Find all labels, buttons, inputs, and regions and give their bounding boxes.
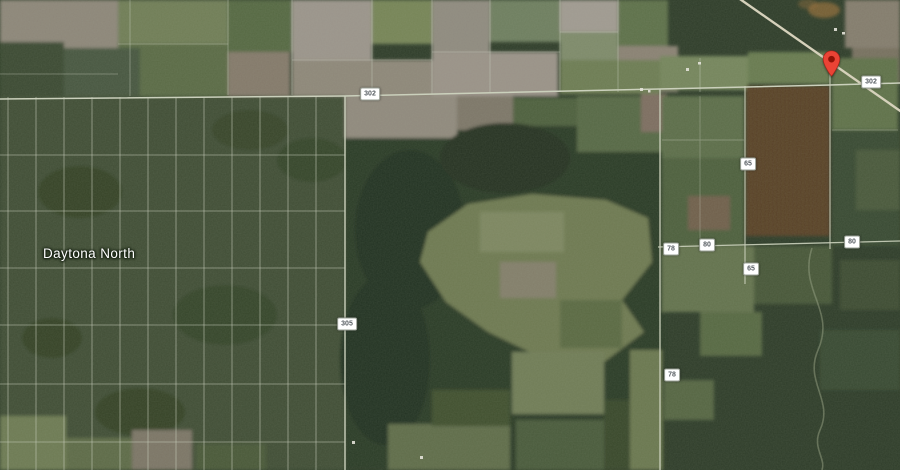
satellite-imagery <box>0 0 900 470</box>
satellite-map[interactable]: Daytona North302302305658078658078 <box>0 0 900 470</box>
map-marker[interactable] <box>822 50 841 77</box>
pin-body-icon <box>823 51 840 76</box>
pin-dot-icon <box>828 56 835 63</box>
